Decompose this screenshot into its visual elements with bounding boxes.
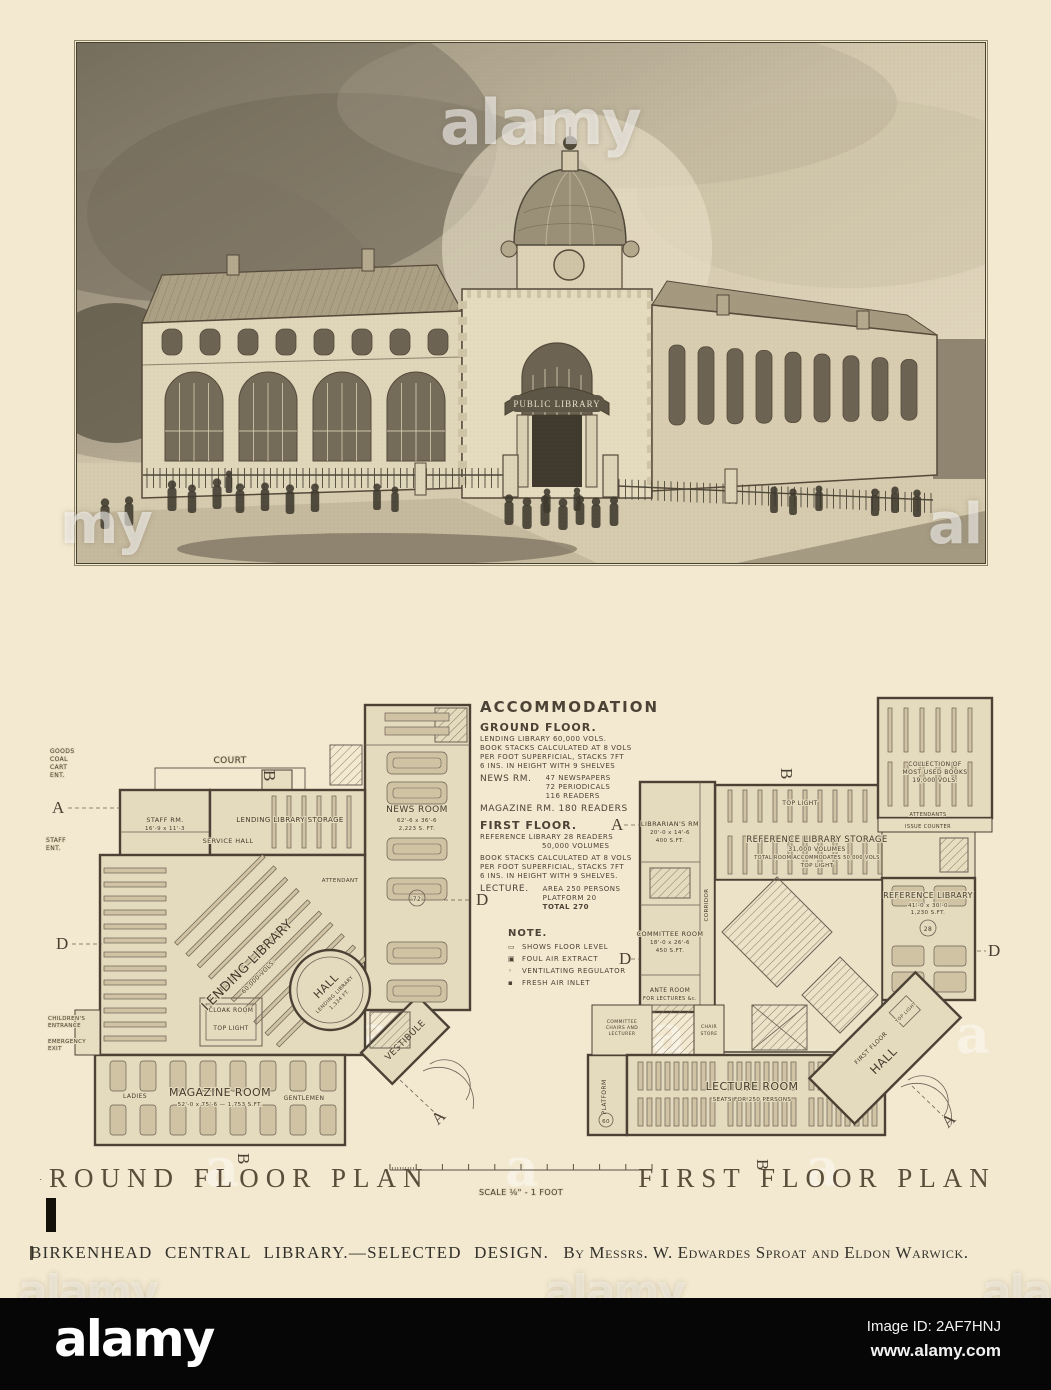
stack [104,1036,166,1041]
note-line: ▣FOUL AIR EXTRACT [508,953,658,965]
spec-line: TOTAL 270 [543,903,621,912]
seat-row [656,1098,661,1126]
label-court: COURT [213,756,246,766]
label-chairs-room: CHAIRS AND [606,1025,638,1031]
chair-store-room [694,1005,724,1055]
label-ref-readers: 28 [924,926,932,933]
stair [652,1005,694,1055]
label-childrens-entrance: ENTRANCE [48,1023,81,1029]
stack [904,708,908,752]
building-illustration: PUBLIC LIBRARY [77,43,985,563]
perspective-photo: PUBLIC LIBRARY [76,42,986,564]
table [260,1105,276,1135]
seat-row [638,1062,643,1090]
label-chairs-room: LECTURER [609,1031,636,1037]
label-lecture-sub: SEATS FOR 250 PERSONS [713,1097,792,1103]
ground-plan-title: GROUND FLOOR PLAN [40,1163,430,1193]
section-marker-b: B [260,770,279,781]
stack [104,952,166,957]
spec-line: PLATFORM 20 [543,894,621,903]
stack [888,708,892,752]
label-platform: PLATFORM [601,1079,608,1114]
spec-line: BOOK STACKS CALCULATED AT 8 VOLS [480,744,670,753]
note-line: ◦VENTILATING REGULATOR [508,965,658,977]
label-staff-ent: STAFF [46,837,66,844]
stack [936,708,940,752]
first-plan-title: FIRST FLOOR PLAN [638,1163,996,1193]
stack [888,762,892,806]
spec-line: 50,000 VOLUMES [542,842,670,851]
stack [104,924,166,929]
seat-row [791,1098,796,1126]
label-magazine-room: MAGAZINE ROOM [169,1086,271,1099]
label-attendant: ATTENDANT [322,878,359,884]
note-line: ▪FRESH AIR INLET [508,977,658,989]
label-goods: CART [50,764,67,771]
caption-byline: By Messrs. W. Edwardes Sproat and Eldon … [563,1243,968,1262]
table [140,1061,156,1091]
floor-level-symbol: ▭ [508,941,522,953]
stack [104,966,166,971]
alamy-footer-bar: alamy Image ID: 2AF7HNJ www.alamy.com [0,1298,1051,1390]
note-line: ▭SHOWS FLOOR LEVEL [508,941,658,953]
stack [104,896,166,901]
label-collection-vols: 19,000 VOLS. [912,777,957,784]
label-staff-ent: ENT. [46,845,61,852]
table [320,1105,336,1135]
label-news-room: NEWS ROOM [386,805,448,815]
label-lending-storage: LENDING LIBRARY STORAGE [236,816,343,824]
label-collection: MOST USED BOOKS [903,769,968,776]
note-block: NOTE. ▭SHOWS FLOOR LEVEL ▣FOUL AIR EXTRA… [508,928,658,989]
stack [952,708,956,752]
stack [104,882,166,887]
ground-floor-plan: VESTIBULE COURT GOODS COAL CART ENT. A S… [40,705,488,1193]
table [110,1061,126,1091]
label-platform-no: 60 [602,1119,610,1125]
section-marker-b: B [777,768,796,779]
stack [104,994,166,999]
entrance-steps [430,1060,470,1100]
stack [833,790,837,822]
entrance-steps [423,1067,474,1109]
spec-line: 6 INS. IN HEIGHT WITH 9 SHELVES [480,762,670,771]
stack [347,796,351,848]
spec-line: AREA 250 PERSONS [543,885,621,894]
label-ref-storage-toplight: TOP LIGHT [800,863,834,869]
table [385,713,449,721]
accommodation-block: ACCOMMODATION GROUND FLOOR. LENDING LIBR… [480,698,670,912]
stack [104,910,166,915]
stack [728,790,732,822]
table [290,1061,306,1091]
label-corridor: CORRIDOR [704,888,710,921]
label-cloakroom: CLOAK ROOM [209,1007,254,1014]
label-reference-library: REFERENCE LIBRARY [883,891,973,900]
table [387,838,447,860]
label-goods: COAL [50,756,68,763]
label-attendants: ATTENDANTS [909,812,946,818]
table [387,980,447,1002]
label-emergency-exit: EMERGENCY [48,1039,86,1045]
label-news-readers: 72 [413,896,421,903]
seat-row [665,1098,670,1126]
seat-row [701,1098,706,1126]
stack [920,708,924,752]
spec-line: 6 INS. IN HEIGHT WITH 9 SHELVES. [480,872,670,881]
stack [104,938,166,943]
spec-line: 47 NEWSPAPERS [546,774,611,783]
spec-line: REFERENCE LIBRARY 28 READERS [480,833,670,842]
table [387,752,447,774]
label-goods: ENT. [50,772,65,779]
seat-row [647,1062,652,1090]
caption-main: BIRKENHEAD CENTRAL LIBRARY.—SELECTED DES… [30,1243,549,1262]
seat-row [647,1098,652,1126]
stack [728,836,732,874]
seat-row [683,1062,688,1090]
section-marker-a: A [52,798,65,817]
label-ref-storage: REFERENCE LIBRARY STORAGE [746,835,887,845]
section-marker-d: D [988,941,1000,960]
scale-label: SCALE ⅛" - 1 FOOT [479,1188,563,1197]
label-chair-store: CHAIR [701,1024,717,1030]
label-chair-store: STORE [700,1031,717,1037]
stair [940,838,968,872]
table [230,1105,246,1135]
fresh-air-symbol: ▪ [508,977,522,989]
spec-line: PER FOOT SUPERFICIAL, STACKS 7FT [480,753,670,762]
seat-row [692,1098,697,1126]
seat-row [674,1062,679,1090]
seat-row [674,1098,679,1126]
foul-air-symbol: ▣ [508,953,522,965]
spec-line: PER FOOT SUPERFICIAL, STACKS 7FT [480,863,670,872]
collection-room [878,698,992,818]
seat-row [638,1098,643,1126]
accommodation-title: ACCOMMODATION [480,698,670,716]
stack [968,708,972,752]
label-news-area: 2,223 S. FT. [399,826,436,832]
stack [104,980,166,985]
table [290,1105,306,1135]
seat-row [656,1062,661,1090]
table [934,946,966,966]
table [385,727,449,735]
label-issue-counter: ISSUE COUNTER [905,824,951,830]
label-staff-rm: STAFF RM. [146,816,183,824]
table [200,1105,216,1135]
label-top-light: TOP LIGHT [212,1025,248,1032]
seat-row [665,1062,670,1090]
stack [104,868,166,873]
seat-row [818,1098,823,1126]
label-reference-dim: 41'-0 x 30'-0 [908,903,948,909]
note-title: NOTE. [508,928,658,939]
alamy-logo: alamy [54,1310,213,1368]
label-ante-sub: FOR LECTURES &c. [643,996,697,1002]
seat-row [809,1098,814,1126]
spec-line: LENDING LIBRARY 60,000 VOLS. [480,735,670,744]
label-collection: COLLECTION OF [908,761,962,768]
stack [743,790,747,822]
section-marker-a: A [937,1109,960,1132]
label-childrens-entrance: CHILDREN'S [48,1016,85,1022]
label-chairs-room: COMMITTEE [607,1019,637,1025]
section-marker-d: D [56,934,68,953]
table [110,1105,126,1135]
table [140,1105,156,1135]
table [387,782,447,804]
stair [330,745,362,785]
stack [758,790,762,822]
label-goods: GOODS [50,748,75,755]
label-gentlemen: GENTLEMEN [284,1095,325,1102]
label-committee-area: 450 S.FT. [656,948,685,954]
label-service-hall: SERVICE HALL [203,837,254,845]
table [892,946,924,966]
table [170,1105,186,1135]
first-floor-heading: FIRST FLOOR. [480,819,670,832]
image-id-text: Image ID: 2AF7HNJ [867,1318,1001,1335]
table [934,972,966,992]
label-news-dim: 62'-6 x 36'-6 [397,818,437,824]
label-storage-toplight: TOP LIGHT [781,800,817,807]
stack [104,1022,166,1027]
print-artifact-bar [46,1198,56,1232]
spec-line: 72 PERIODICALS [546,783,611,792]
halftone-texture [77,43,985,563]
spec-line: BOOK STACKS CALCULATED AT 8 VOLS [480,854,670,863]
caption: BIRKENHEAD CENTRAL LIBRARY.—SELECTED DES… [30,1243,1030,1263]
news-room-tables [385,713,449,1002]
seat-row [683,1098,688,1126]
ground-floor-heading: GROUND FLOOR. [480,721,670,734]
scanned-print-page: PUBLIC LIBRARY alamy my al a a a a a a a… [0,0,1051,1390]
lecture-label: LECTURE. [480,884,529,912]
alamy-url-text: www.alamy.com [867,1341,1001,1361]
stack [863,790,867,822]
table [320,1061,336,1091]
hall-steps [908,1076,948,1116]
label-staff-rm-dim: 16'-9 x 11'-3 [145,826,185,832]
magazine-line: MAGAZINE RM. 180 READERS [480,804,670,814]
label-lecture-room: LECTURE ROOM [706,1080,799,1093]
label-emergency-exit: EXIT [48,1046,62,1052]
seat-row [827,1098,832,1126]
table [387,942,447,964]
stair [370,1012,410,1048]
stack [968,762,972,806]
label-ref-storage-vols: 31,000 VOLUMES [788,846,845,853]
seat-row [692,1062,697,1090]
stack [773,790,777,822]
stack [848,790,852,822]
label-reference-area: 1,230 S.FT. [911,910,946,916]
regulator-symbol: ◦ [508,965,522,977]
label-ladies: LADIES [123,1093,147,1100]
stack [818,790,822,822]
news-rm-label: NEWS RM. [480,774,532,801]
label-ref-storage-note: TOTAL ROOM ACCOMMODATES 50,000 VOLS [753,855,880,861]
stack [104,1008,166,1013]
label-magazine-dim: 52'-0 x 75'-6 — 1,753 S.FT. [178,1102,263,1108]
spec-line: 116 READERS [546,792,611,801]
